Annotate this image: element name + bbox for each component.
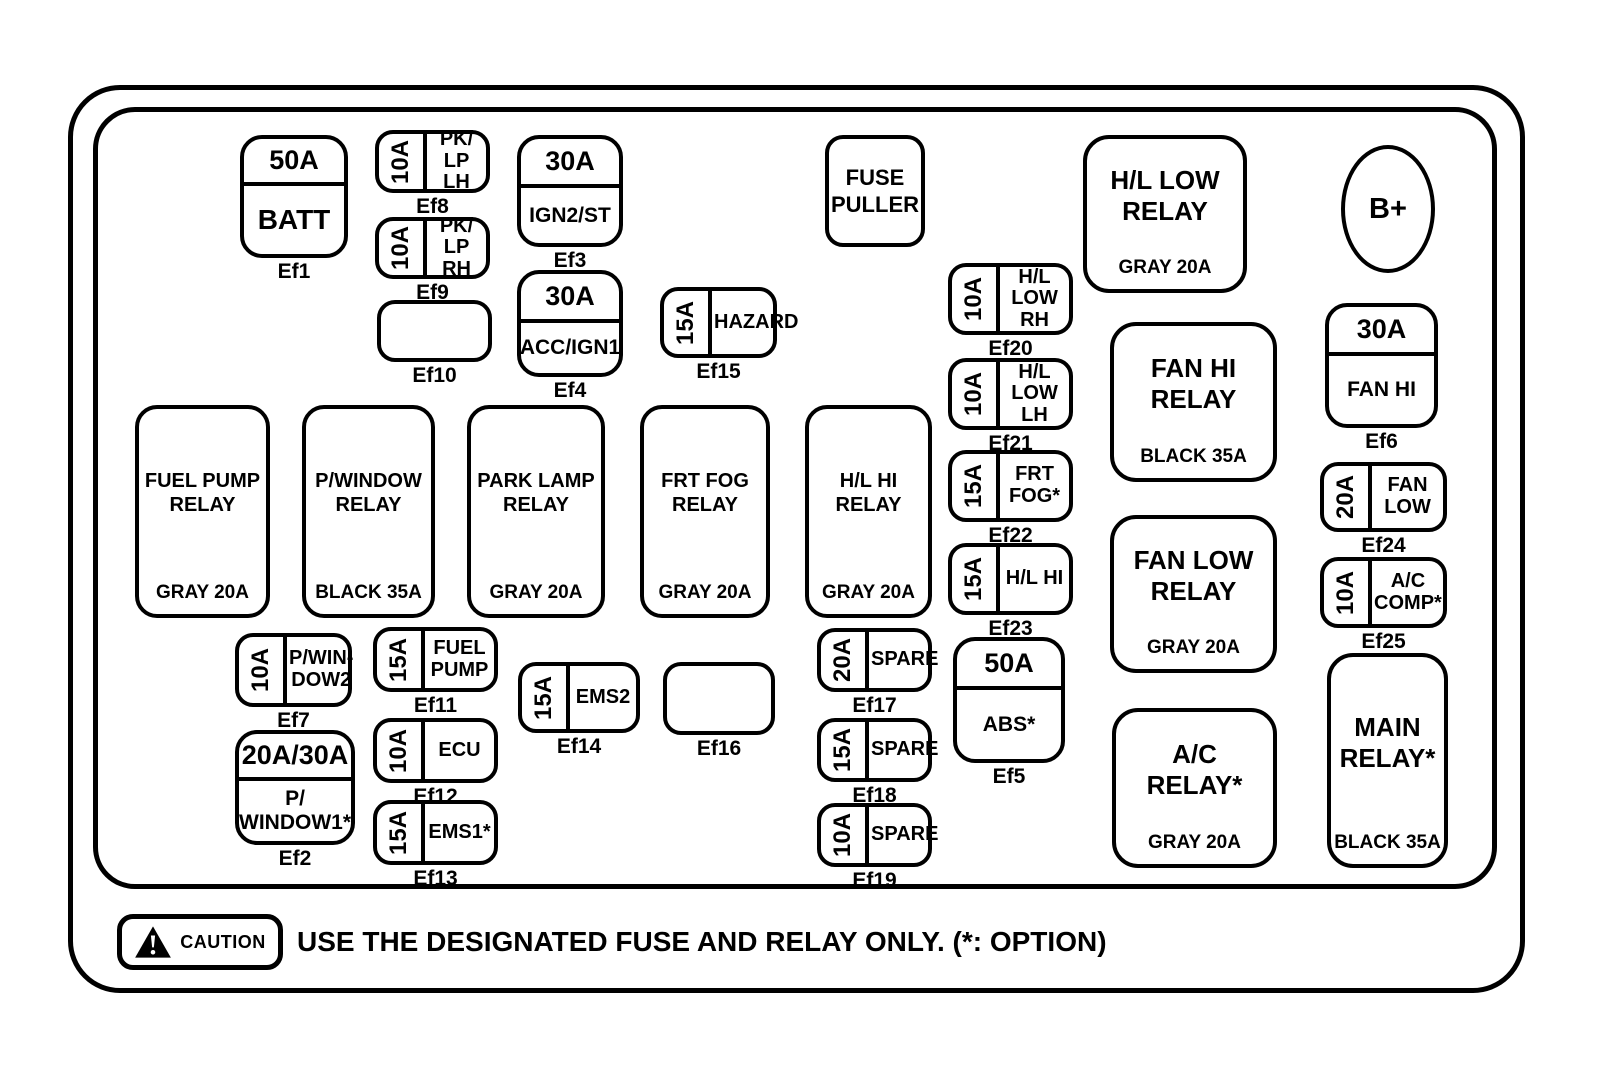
empty-slot-ef10 [377, 300, 492, 362]
fuse-ef24: 20AFAN LOW [1320, 462, 1447, 532]
fuse-ef17: 20ASPARE [817, 628, 932, 692]
caution-label: CAUTION [180, 932, 266, 953]
fuse-ef6-tag: Ef6 [1325, 430, 1438, 453]
hl-hi-relay-name: H/L HI RELAY [809, 409, 928, 578]
fuse-ef13: 15AEMS1* [373, 800, 498, 865]
fuse-ef11-amp-rating: 15A [385, 637, 413, 681]
ac-relay-spec: GRAY 20A [1116, 832, 1273, 854]
fuse-ef21-amp-rating: 10A [960, 372, 988, 416]
fuse-ef13-amp-strip: 15A [377, 804, 425, 861]
fuse-ef13-tag: Ef13 [373, 867, 498, 890]
fuse-ef4-name: ACC/IGN1 [521, 323, 619, 373]
frt-fog-relay-name: FRT FOG RELAY [644, 409, 766, 578]
fuse-ef22-amp-rating: 15A [960, 464, 988, 508]
fuse-ef17-tag: Ef17 [817, 694, 932, 717]
fuse-ef3-tag: Ef3 [517, 249, 623, 272]
frt-fog-relay-spec: GRAY 20A [644, 582, 766, 604]
fuse-ef8: 10APK/ LP LH [375, 130, 490, 193]
fuse-ef25-amp-strip: 10A [1324, 561, 1372, 624]
p-window-relay-spec: BLACK 35A [306, 582, 431, 604]
fuse-ef3-name: IGN2/ST [521, 188, 619, 243]
fuse-ef5-name: ABS* [957, 690, 1061, 759]
park-lamp-relay-name: PARK LAMP RELAY [471, 409, 601, 578]
fuse-ef12-amp-strip: 10A [377, 722, 425, 779]
fuse-ef20-amp-strip: 10A [952, 267, 1000, 331]
fan-hi-relay: FAN HI RELAYBLACK 35A [1110, 322, 1277, 482]
fuse-ef4-amp-rating: 30A [521, 274, 619, 323]
fuse-ef13-amp-rating: 15A [385, 810, 413, 854]
fuse-ef13-name: EMS1* [425, 804, 494, 861]
park-lamp-relay-spec: GRAY 20A [471, 582, 601, 604]
fuse-ef1-amp-rating: 50A [244, 139, 344, 186]
fuse-ef22-name: FRT FOG* [1000, 454, 1069, 518]
hl-low-relay: H/L LOW RELAYGRAY 20A [1083, 135, 1247, 293]
fuse-ef14-amp-strip: 15A [522, 666, 570, 729]
fuse-ef1-tag: Ef1 [240, 260, 348, 283]
fuel-pump-relay-name: FUEL PUMP RELAY [139, 409, 266, 578]
fuse-ef23-amp-strip: 15A [952, 547, 1000, 611]
fuse-ef2: 20A/30AP/ WINDOW1* [235, 730, 355, 845]
fuse-ef19-amp-rating: 10A [829, 813, 857, 857]
fuse-ef1-name: BATT [244, 186, 344, 254]
fuse-ef21: 10AH/L LOW LH [948, 358, 1073, 430]
fuse-ef23-amp-rating: 15A [960, 557, 988, 601]
fuse-ef11: 15AFUEL PUMP [373, 627, 498, 692]
caution-badge: CAUTION [117, 914, 283, 970]
empty-slot-ef16-tag: Ef16 [663, 737, 775, 760]
fuse-ef25-name: A/C COMP* [1372, 561, 1444, 624]
main-relay-spec: BLACK 35A [1331, 832, 1444, 854]
caution-message: USE THE DESIGNATED FUSE AND RELAY ONLY. … [297, 914, 1107, 970]
fuse-ef5-tag: Ef5 [953, 765, 1065, 788]
fuse-ef1: 50ABATT [240, 135, 348, 258]
fuse-ef22-amp-strip: 15A [952, 454, 1000, 518]
fuse-ef14-name: EMS2 [570, 666, 636, 729]
fuse-ef19-tag: Ef19 [817, 869, 932, 892]
fuse-ef24-amp-rating: 20A [1332, 475, 1360, 519]
fuse-ef2-name: P/ WINDOW1* [239, 781, 351, 841]
hl-hi-relay-spec: GRAY 20A [809, 582, 928, 604]
fuse-ef11-amp-strip: 15A [377, 631, 425, 688]
fuse-ef14-tag: Ef14 [518, 735, 640, 758]
fuse-ef20: 10AH/L LOW RH [948, 263, 1073, 335]
fuse-ef4: 30AACC/IGN1 [517, 270, 623, 377]
fuse-box-diagram: CAUTION USE THE DESIGNATED FUSE AND RELA… [0, 0, 1600, 1084]
frt-fog-relay: FRT FOG RELAYGRAY 20A [640, 405, 770, 618]
fuse-ef25-amp-rating: 10A [1332, 570, 1360, 614]
fuse-puller-name: FUSE PULLER [831, 164, 919, 219]
ac-relay: A/C RELAY*GRAY 20A [1112, 708, 1277, 868]
fuse-ef15-amp-strip: 15A [664, 291, 712, 354]
fuse-ef15-tag: Ef15 [660, 360, 777, 383]
fuse-ef12-amp-rating: 10A [385, 728, 413, 772]
fuel-pump-relay-spec: GRAY 20A [139, 582, 266, 604]
fuse-ef7: 10AP/WIN- DOW2 [235, 633, 352, 707]
fuse-ef3-amp-rating: 30A [521, 139, 619, 188]
fuse-ef19-amp-strip: 10A [821, 807, 869, 863]
fuse-ef15: 15AHAZARD [660, 287, 777, 358]
p-window-relay-name: P/WINDOW RELAY [306, 409, 431, 578]
fan-hi-relay-name: FAN HI RELAY [1114, 326, 1273, 442]
empty-slot-ef10-tag: Ef10 [377, 364, 492, 387]
fuse-ef21-name: H/L LOW LH [1000, 362, 1069, 426]
fuse-ef15-name: HAZARD [712, 291, 800, 354]
fuse-ef14: 15AEMS2 [518, 662, 640, 733]
main-relay: MAIN RELAY*BLACK 35A [1327, 653, 1448, 868]
fuse-ef7-tag: Ef7 [235, 709, 352, 732]
fuse-ef17-amp-rating: 20A [829, 638, 857, 682]
fuse-ef8-name: PK/ LP LH [427, 134, 486, 189]
empty-slot-ef16 [663, 662, 775, 735]
fuse-ef9: 10APK/ LP RH [375, 217, 490, 279]
fuse-ef7-amp-strip: 10A [239, 637, 287, 703]
fuse-ef9-amp-strip: 10A [379, 221, 427, 275]
fuse-ef17-name: SPARE [869, 632, 940, 688]
hl-hi-relay: H/L HI RELAYGRAY 20A [805, 405, 932, 618]
fuse-ef18-amp-rating: 15A [829, 728, 857, 772]
fuse-ef22: 15AFRT FOG* [948, 450, 1073, 522]
fuse-ef6-amp-rating: 30A [1329, 307, 1434, 356]
fuse-ef23-name: H/L HI [1000, 547, 1069, 611]
fuse-ef14-amp-rating: 15A [530, 675, 558, 719]
fuse-ef7-name: P/WIN- DOW2 [287, 637, 355, 703]
fuse-ef2-tag: Ef2 [235, 847, 355, 870]
fan-low-relay-name: FAN LOW RELAY [1114, 519, 1273, 633]
fuse-ef9-name: PK/ LP RH [427, 221, 486, 275]
fuse-ef8-amp-rating: 10A [387, 139, 415, 183]
fuse-ef11-tag: Ef11 [373, 694, 498, 717]
fuse-ef20-amp-rating: 10A [960, 277, 988, 321]
p-window-relay: P/WINDOW RELAYBLACK 35A [302, 405, 435, 618]
fuse-ef4-tag: Ef4 [517, 379, 623, 402]
fan-hi-relay-spec: BLACK 35A [1114, 446, 1273, 468]
fuse-ef24-name: FAN LOW [1372, 466, 1443, 528]
hl-low-relay-name: H/L LOW RELAY [1087, 139, 1243, 253]
fan-low-relay: FAN LOW RELAYGRAY 20A [1110, 515, 1277, 673]
fuse-ef23: 15AH/L HI [948, 543, 1073, 615]
fuse-ef20-name: H/L LOW RH [1000, 267, 1069, 331]
fuse-ef19: 10ASPARE [817, 803, 932, 867]
b-plus-terminal-name: B+ [1369, 193, 1407, 226]
fuse-ef17-amp-strip: 20A [821, 632, 869, 688]
hl-low-relay-spec: GRAY 20A [1087, 257, 1243, 279]
fuse-ef12-name: ECU [425, 722, 494, 779]
main-relay-name: MAIN RELAY* [1331, 657, 1444, 828]
fuse-ef24-amp-strip: 20A [1324, 466, 1372, 528]
fuse-ef19-name: SPARE [869, 807, 940, 863]
fuse-ef2-amp-rating: 20A/30A [239, 734, 351, 781]
fuse-ef11-name: FUEL PUMP [425, 631, 494, 688]
fuse-ef15-amp-rating: 15A [672, 300, 700, 344]
fuse-ef18-amp-strip: 15A [821, 722, 869, 778]
fuse-ef12: 10AECU [373, 718, 498, 783]
fuse-ef6-name: FAN HI [1329, 356, 1434, 424]
fuse-ef9-amp-rating: 10A [387, 226, 415, 270]
fuse-ef21-amp-strip: 10A [952, 362, 1000, 426]
fuse-ef24-tag: Ef24 [1320, 534, 1447, 557]
fuse-ef7-amp-rating: 10A [247, 648, 275, 692]
fuse-ef20-tag: Ef20 [948, 337, 1073, 360]
fuse-ef5: 50AABS* [953, 637, 1065, 763]
fuel-pump-relay: FUEL PUMP RELAYGRAY 20A [135, 405, 270, 618]
fuse-ef18: 15ASPARE [817, 718, 932, 782]
fuse-ef6: 30AFAN HI [1325, 303, 1438, 428]
fuse-ef25-tag: Ef25 [1320, 630, 1447, 653]
fuse-ef5-amp-rating: 50A [957, 641, 1061, 690]
fuse-ef3: 30AIGN2/ST [517, 135, 623, 247]
fan-low-relay-spec: GRAY 20A [1114, 637, 1273, 659]
fuse-ef8-amp-strip: 10A [379, 134, 427, 189]
b-plus-terminal: B+ [1341, 145, 1435, 273]
park-lamp-relay: PARK LAMP RELAYGRAY 20A [467, 405, 605, 618]
fuse-ef18-name: SPARE [869, 722, 940, 778]
fuse-ef25: 10AA/C COMP* [1320, 557, 1447, 628]
warning-triangle-icon [134, 925, 172, 959]
ac-relay-name: A/C RELAY* [1116, 712, 1273, 828]
fuse-puller: FUSE PULLER [825, 135, 925, 247]
